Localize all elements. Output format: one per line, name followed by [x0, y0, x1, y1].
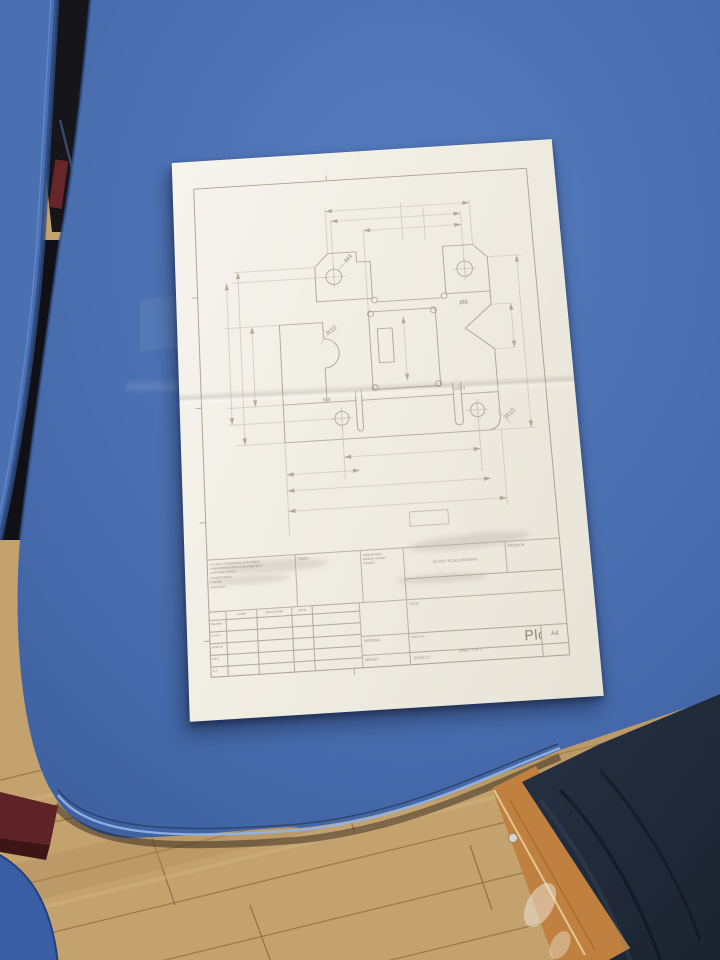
label-r10-corner: R10	[504, 406, 518, 420]
left-arm	[279, 323, 327, 406]
photo-of-technical-drawing: { "scene": { "colors": { "table_blue": "…	[0, 0, 720, 960]
label-dia8: Ø8	[459, 299, 469, 306]
revision-cell: REVISION	[504, 537, 562, 571]
light-crease-on-table	[126, 382, 184, 391]
center-slot	[377, 328, 394, 363]
center-block	[368, 308, 440, 390]
label-4xm4: 4xM4	[452, 386, 466, 393]
r10-cutout	[324, 338, 340, 368]
title-block: UNLESS OTHERWISE SPECIFIED: DIMENSIONS A…	[207, 537, 570, 677]
screw	[509, 834, 518, 843]
part-outline	[276, 244, 501, 443]
paper-size-cell: A4	[540, 623, 569, 644]
tolerance-note: UNLESS OTHERWISE SPECIFIED: DIMENSIONS A…	[207, 554, 297, 612]
drawing-sheet-a4: M4 Ø8 R10 M4 4xM4 R10 UNLESS OTHERWISE S…	[172, 139, 604, 722]
dimension-lines	[220, 195, 545, 540]
finish-cell: FINISH:	[295, 550, 363, 606]
bottom-band	[283, 392, 501, 443]
label-m4-top: M4	[343, 253, 354, 264]
annotation-labels: M4 Ø8 R10 M4 4xM4 R10	[315, 243, 518, 432]
label-r10-left: R10	[325, 324, 339, 337]
label-m4-bottom: M4	[323, 397, 331, 404]
tab-slot-left	[355, 390, 363, 431]
debur-cell: DEBUR AND BREAK SHARP EDGES	[360, 547, 406, 602]
holes	[322, 257, 490, 430]
